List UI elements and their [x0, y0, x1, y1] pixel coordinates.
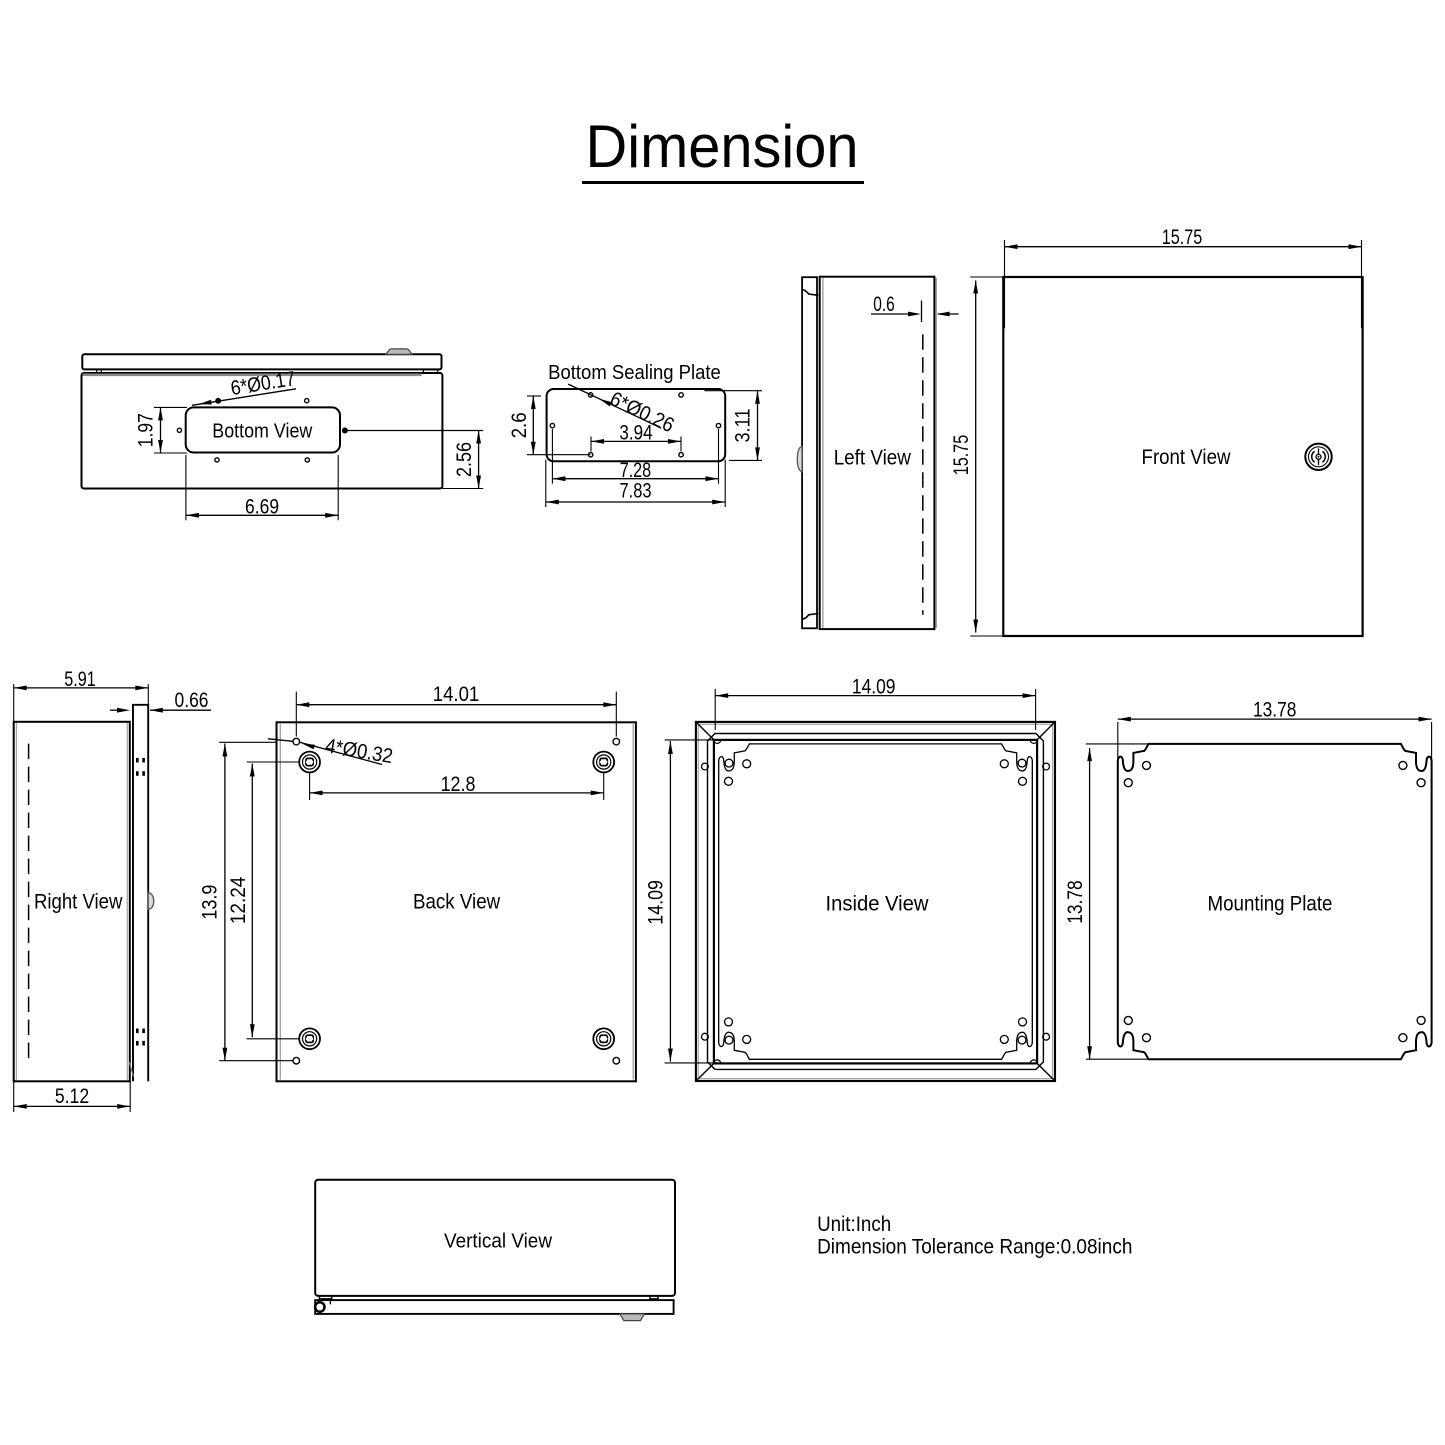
svg-text:Dimension: Dimension: [586, 113, 859, 180]
svg-text:Back View: Back View: [413, 891, 501, 914]
svg-text:Unit:Inch: Unit:Inch: [817, 1213, 891, 1236]
svg-text:Front View: Front View: [1142, 446, 1232, 469]
svg-text:14.09: 14.09: [852, 675, 896, 699]
svg-text:12.8: 12.8: [441, 772, 476, 796]
svg-text:Bottom Sealing Plate: Bottom Sealing Plate: [548, 361, 721, 384]
svg-text:Left View: Left View: [834, 446, 912, 469]
svg-text:0.6: 0.6: [873, 292, 895, 316]
svg-text:Mounting Plate: Mounting Plate: [1208, 893, 1333, 916]
svg-text:5.91: 5.91: [64, 667, 96, 691]
svg-text:Dimension Tolerance Range:0.08: Dimension Tolerance Range:0.08inch: [817, 1235, 1132, 1258]
svg-text:1.97: 1.97: [134, 413, 158, 447]
svg-text:12.24: 12.24: [226, 877, 250, 925]
svg-text:14.01: 14.01: [433, 682, 480, 706]
svg-text:Bottom View: Bottom View: [212, 419, 312, 442]
svg-text:Inside View: Inside View: [826, 893, 930, 916]
svg-text:Vertical View: Vertical View: [444, 1229, 552, 1252]
svg-text:7.83: 7.83: [620, 479, 652, 503]
svg-text:2.56: 2.56: [452, 442, 476, 477]
svg-text:13.78: 13.78: [1253, 698, 1296, 722]
svg-text:5.12: 5.12: [55, 1084, 89, 1108]
svg-text:3.11: 3.11: [731, 409, 755, 443]
svg-text:3.94: 3.94: [619, 420, 652, 444]
svg-text:13.9: 13.9: [197, 885, 221, 920]
svg-text:14.09: 14.09: [644, 880, 668, 925]
svg-text:15.75: 15.75: [1162, 225, 1203, 249]
svg-text:Right View: Right View: [34, 891, 123, 914]
svg-text:0.66: 0.66: [175, 688, 209, 712]
svg-text:6.69: 6.69: [245, 494, 279, 518]
svg-text:13.78: 13.78: [1063, 880, 1087, 923]
svg-text:15.75: 15.75: [949, 435, 973, 476]
svg-text:2.6: 2.6: [507, 412, 531, 438]
